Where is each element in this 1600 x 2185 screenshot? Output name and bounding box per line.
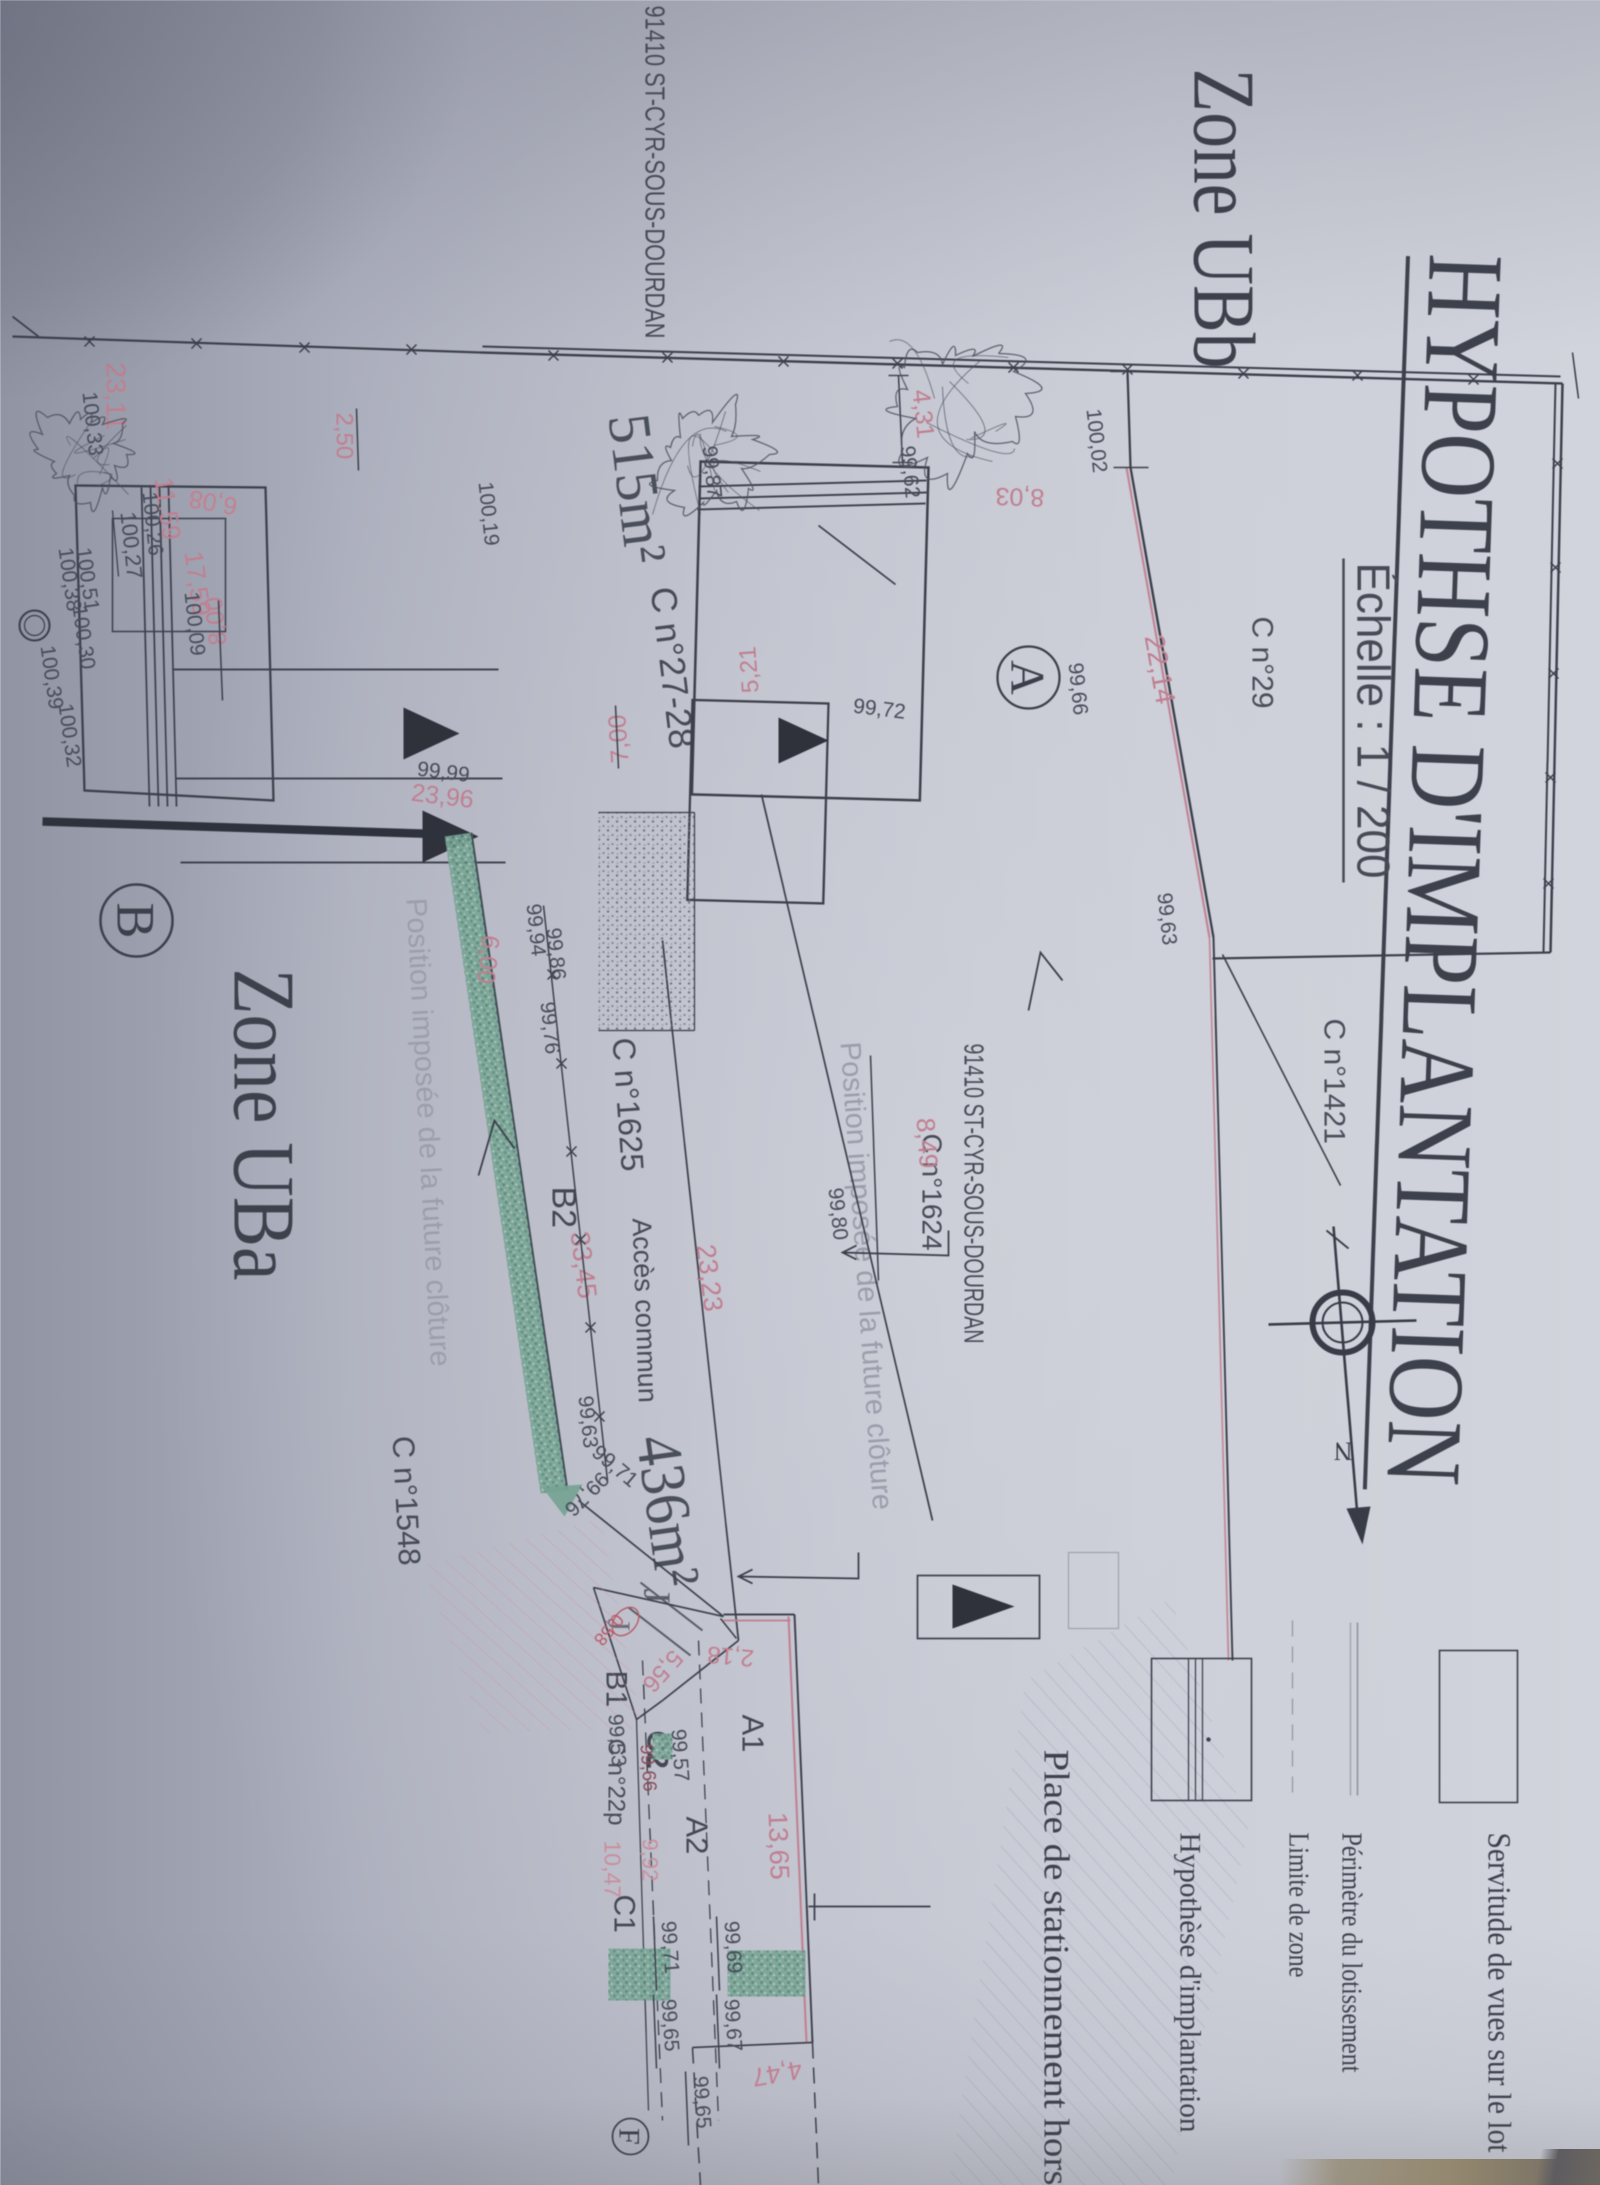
svg-text:Position imposée de la future: Position imposée de la future clôture	[399, 897, 456, 1367]
svg-text:Zone UBb: Zone UBb	[1174, 68, 1271, 368]
svg-text:C n°1421: C n°1421	[1317, 1018, 1350, 1143]
svg-text:99,65: 99,65	[656, 1998, 683, 2052]
svg-text:10,47: 10,47	[599, 1840, 625, 1898]
svg-text:Position imposée de la future: Position imposée de la future clôture	[833, 1040, 898, 1510]
svg-text:4,47: 4,47	[749, 2054, 804, 2092]
svg-text:8,03: 8,03	[995, 481, 1045, 511]
svg-text:N: N	[1333, 1436, 1352, 1465]
svg-text:100,32: 100,32	[53, 701, 85, 768]
svg-text:6,00: 6,00	[471, 933, 504, 984]
svg-text:Hypothèse d'implantation: Hypothèse d'implantation	[1173, 1832, 1206, 2132]
svg-text:Servitude de vues sur le lot: Servitude de vues sur le lot	[1480, 1832, 1516, 2152]
svg-text:99,69: 99,69	[719, 1920, 746, 1974]
svg-text:B: B	[105, 902, 165, 938]
svg-text:99,86: 99,86	[541, 926, 569, 981]
svg-text:100,30: 100,30	[67, 603, 99, 670]
svg-text:2,50: 2,50	[330, 412, 357, 459]
svg-text:515m²: 515m²	[595, 410, 679, 567]
svg-text:C n°1548: C n°1548	[385, 1435, 427, 1566]
svg-text:Zone UBa: Zone UBa	[214, 968, 311, 1280]
svg-text:Limite de zone: Limite de zone	[1282, 1832, 1314, 1977]
svg-text:Accès commun: Accès commun	[626, 1217, 662, 1402]
svg-text:99,65: 99,65	[688, 2075, 715, 2129]
svg-text:99,53: 99,53	[603, 1713, 630, 1767]
svg-text:91410 ST-CYR-SOUS-DOURDAN: 91410 ST-CYR-SOUS-DOURDAN	[639, 5, 670, 338]
svg-text:100,39: 100,39	[35, 643, 67, 710]
svg-text:99,67: 99,67	[719, 1998, 746, 2052]
svg-text:A1: A1	[735, 1714, 770, 1752]
svg-text:99,63: 99,63	[1152, 891, 1180, 946]
svg-text:99,66: 99,66	[1063, 661, 1091, 716]
svg-text:436m²: 436m²	[622, 1430, 713, 1590]
svg-text:22,14: 22,14	[1138, 632, 1181, 706]
svg-text:9,92: 9,92	[637, 1838, 662, 1881]
svg-text:6,08: 6,08	[186, 484, 239, 520]
svg-text:5,21: 5,21	[734, 645, 764, 693]
svg-text:99,80: 99,80	[823, 1186, 851, 1241]
svg-text:A2: A2	[679, 1816, 714, 1854]
svg-text:13,65: 13,65	[762, 1811, 794, 1880]
svg-text:99,71: 99,71	[656, 1920, 683, 1974]
svg-text:99,57: 99,57	[666, 1728, 693, 1782]
svg-text:23,23: 23,23	[690, 1242, 728, 1313]
svg-text:Échelle : 1 / 200: Échelle : 1 / 200	[1347, 562, 1399, 878]
svg-text:100,02: 100,02	[1081, 407, 1111, 473]
svg-text:Place de stationnement hors: Place de stationnement hors	[1036, 1749, 1076, 2185]
svg-text:C1: C1	[607, 1894, 640, 1932]
svg-text:100,19: 100,19	[473, 480, 503, 546]
svg-text:C n°29: C n°29	[1245, 616, 1278, 708]
svg-text:91410 ST-CYR-SOUS-DOURDAN: 91410 ST-CYR-SOUS-DOURDAN	[958, 1043, 989, 1343]
svg-text:Périmètre du lotissement: Périmètre du lotissement	[1335, 1832, 1367, 2072]
svg-text:2,18: 2,18	[706, 1640, 755, 1671]
svg-text:99,72: 99,72	[851, 694, 906, 723]
svg-text:A: A	[1000, 660, 1053, 695]
svg-text:C n°1625: C n°1625	[605, 1036, 650, 1172]
svg-text:F: F	[612, 2128, 645, 2145]
svg-text:8,49: 8,49	[910, 1116, 943, 1169]
svg-text:99,76: 99,76	[535, 1000, 563, 1055]
svg-text:99,62: 99,62	[895, 444, 923, 499]
svg-text:99,63: 99,63	[573, 1394, 601, 1449]
svg-text:100,09: 100,09	[179, 590, 209, 656]
